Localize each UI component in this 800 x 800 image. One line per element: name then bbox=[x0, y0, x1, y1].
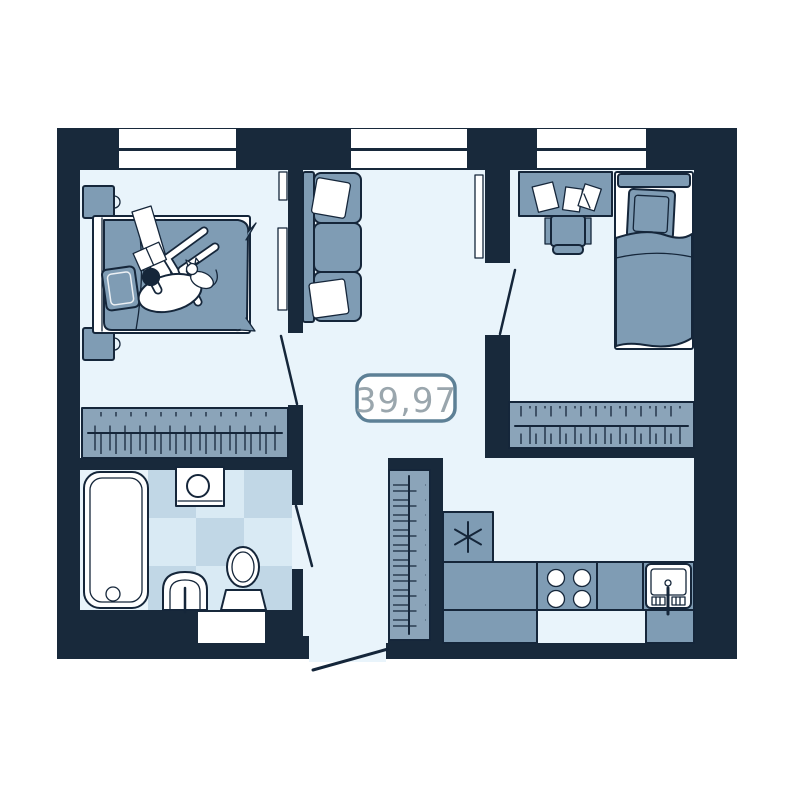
wall-foot bbox=[288, 636, 309, 659]
area-value: 39,97 bbox=[355, 381, 457, 421]
area-label: 39,97 bbox=[355, 375, 457, 421]
window-1 bbox=[119, 129, 236, 168]
tv-panel-living bbox=[475, 175, 483, 258]
floor-plan-page: 39,97 bbox=[0, 0, 800, 800]
window-3 bbox=[537, 129, 646, 168]
sofa-pillow-2 bbox=[309, 279, 350, 319]
wardrobe-bedroom-2 bbox=[509, 402, 694, 448]
bathroom bbox=[84, 467, 312, 612]
room-hallway bbox=[303, 458, 388, 643]
kitchen-sink bbox=[646, 564, 691, 614]
double-bed bbox=[93, 206, 256, 333]
desk bbox=[519, 172, 612, 216]
wardrobe-bedroom-1 bbox=[82, 408, 288, 458]
windows bbox=[119, 129, 646, 168]
floor-plan: 39,97 bbox=[0, 0, 800, 800]
tv-panel-bedroom-1 bbox=[278, 228, 287, 310]
nightstand-top bbox=[83, 186, 120, 218]
wall-shelf bbox=[279, 172, 287, 200]
pillow bbox=[101, 266, 139, 311]
bathroom-sink bbox=[163, 572, 207, 612]
person-head bbox=[143, 269, 160, 286]
sofa bbox=[303, 172, 361, 322]
niche bbox=[198, 612, 265, 643]
single-bed bbox=[615, 172, 693, 349]
door-opening-bedroom-2 bbox=[485, 263, 510, 335]
washing-machine bbox=[176, 467, 224, 506]
window-2 bbox=[351, 129, 467, 168]
wardrobe-hallway bbox=[389, 470, 430, 640]
sofa-pillow-1 bbox=[311, 177, 351, 218]
bathtub bbox=[84, 472, 148, 608]
fridge bbox=[443, 512, 493, 562]
